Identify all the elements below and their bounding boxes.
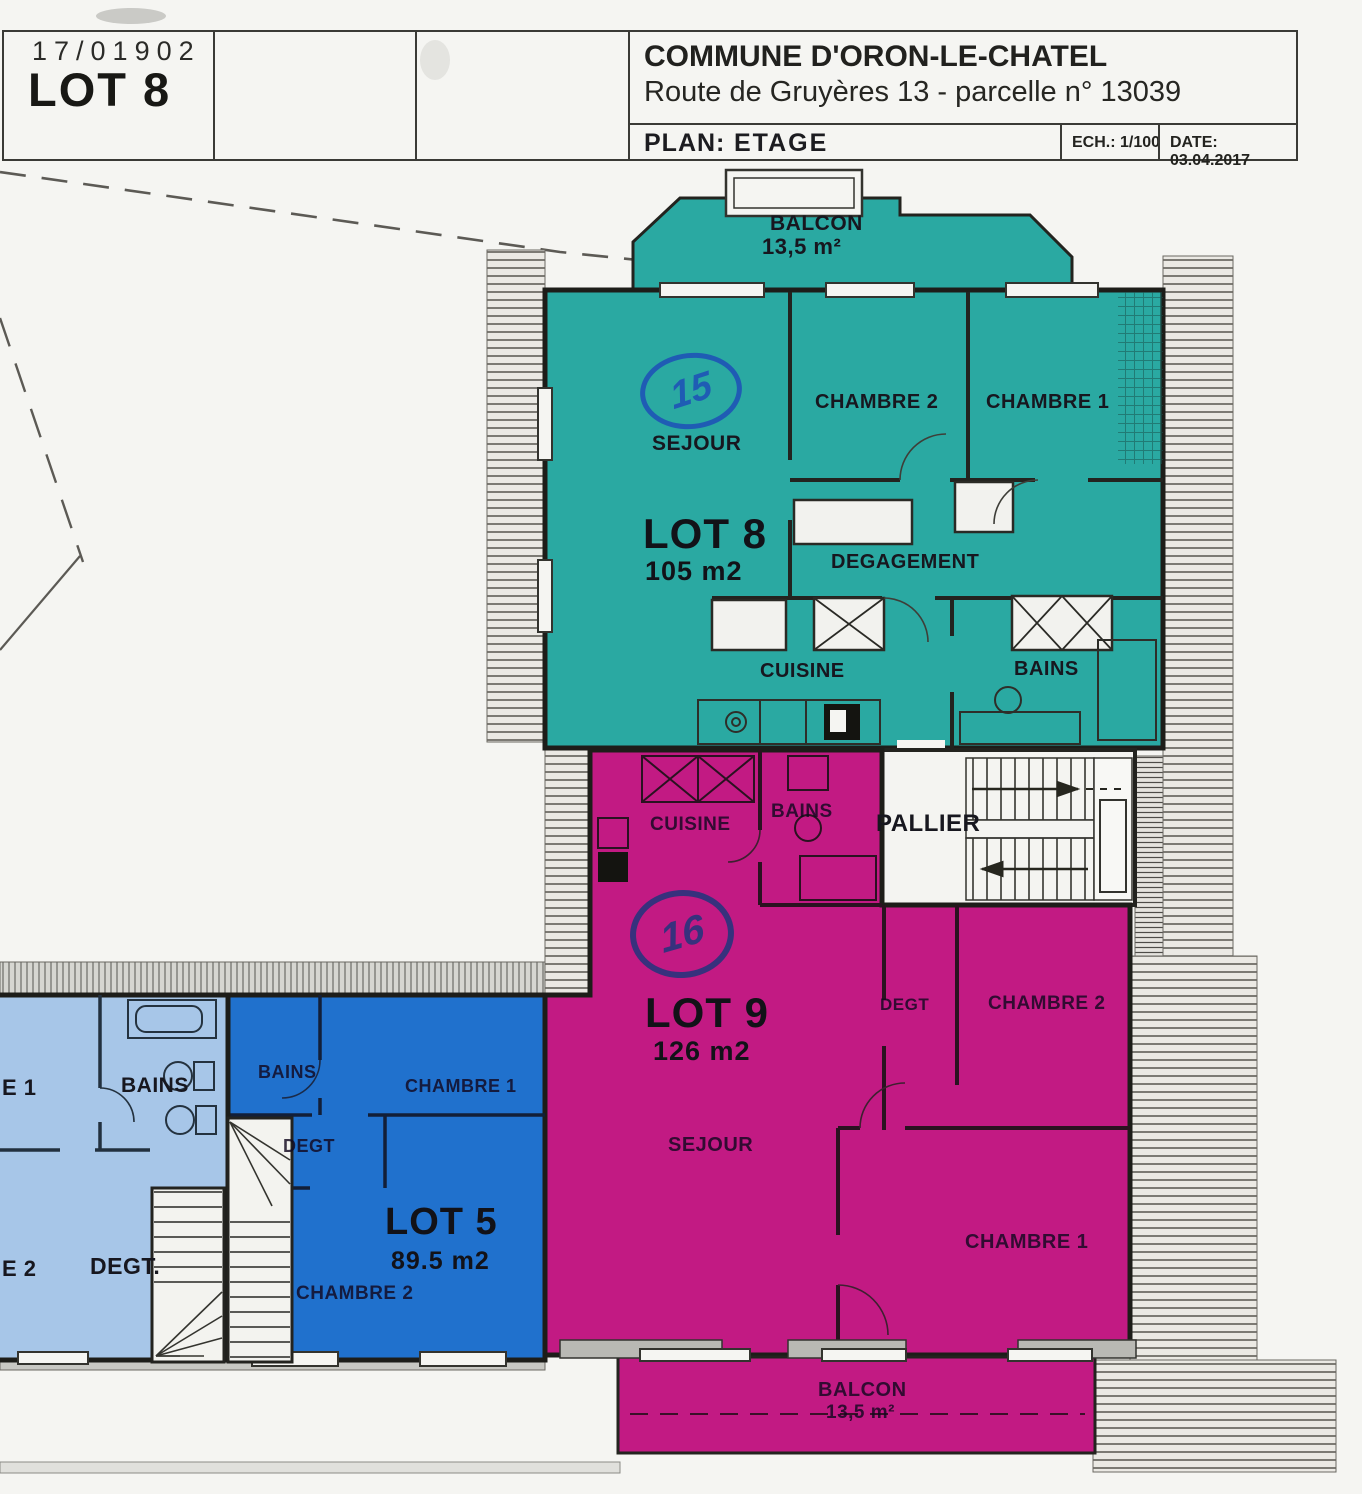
lot9-room-sejour: SEJOUR [668,1134,753,1157]
lot5-area: 89.5 m2 [391,1247,490,1276]
divider [1158,125,1160,159]
lot5-room-bains: BAINS [258,1062,317,1083]
floor-plan-drawing [0,0,1362,1494]
lot8-area: 105 m2 [645,556,743,587]
lot9-area: 126 m2 [653,1036,751,1067]
title-cell-empty-2 [417,32,630,159]
lot9-balcon-area: 13,5 m² [826,1402,895,1424]
title-bar: 17/01902 LOT 8 COMMUNE D'ORON-LE-CHATEL … [2,30,1298,161]
lot8-balcon-label: BALCON [770,212,863,236]
west-room-chambre1-partial: E 1 [2,1075,37,1101]
commune-address: Route de Gruyères 13 - parcelle n° 13039 [644,76,1181,109]
scan-smudge [420,40,450,80]
lot9-room-degt: DEGT [880,995,929,1015]
title-cell-lot: 17/01902 LOT 8 [4,32,215,159]
lot5-room-chambre2: CHAMBRE 2 [296,1283,413,1305]
lot9-room-bains: BAINS [771,801,833,823]
plan-label: PLAN: [644,129,725,158]
divider [1060,125,1062,159]
lot8-balcon-area: 13,5 m² [762,234,841,260]
lot9-room-chambre1: CHAMBRE 1 [965,1231,1088,1254]
lot5-room-degt: DEGT [283,1136,335,1157]
lot8-room-sejour: SEJOUR [652,432,741,456]
lot8-room-bains: BAINS [1014,658,1079,681]
lot8-name: LOT 8 [643,510,767,558]
lot9-room-chambre2: CHAMBRE 2 [988,993,1105,1015]
lot9-room-cuisine: CUISINE [650,814,731,836]
title-cell-empty-1 [215,32,417,159]
floor-plan-page: 17/01902 LOT 8 COMMUNE D'ORON-LE-CHATEL … [0,0,1362,1494]
west-room-bains: BAINS [121,1074,189,1098]
scan-smudge [96,8,166,24]
west-room-degt: DEGT. [90,1253,160,1280]
lot9-balcon-label: BALCON [818,1379,907,1402]
title-lot-label: LOT 8 [28,62,171,117]
lot8-room-cuisine: CUISINE [760,660,845,683]
commune-name: COMMUNE D'ORON-LE-CHATEL [644,40,1107,74]
lot8-room-chambre2: CHAMBRE 2 [815,391,938,414]
lot8-room-chambre1: CHAMBRE 1 [986,391,1109,414]
plan-row: PLAN: ETAGE ECH.: 1/100 DATE: 03.04.2017 [630,123,1296,159]
lot9-name: LOT 9 [645,989,769,1037]
date-value: DATE: 03.04.2017 [1170,134,1296,170]
plan-value: ETAGE [734,129,828,158]
pallier-label: PALLIER [876,810,980,838]
west-room-chambre2-partial: E 2 [2,1256,37,1282]
lot5-room-chambre1: CHAMBRE 1 [405,1076,517,1097]
lot8-room-degagement: DEGAGEMENT [831,551,979,574]
title-cell-header: COMMUNE D'ORON-LE-CHATEL Route de Gruyèr… [630,32,1296,159]
scale-value: ECH.: 1/100 [1072,134,1160,152]
lot5-name: LOT 5 [385,1201,498,1244]
